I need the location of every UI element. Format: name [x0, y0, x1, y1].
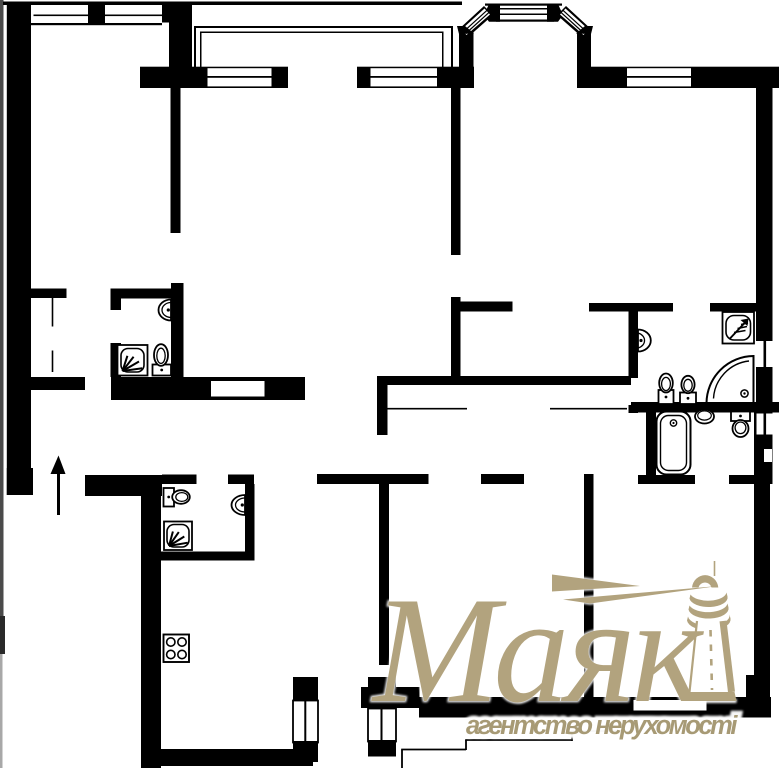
svg-text:агентство нерухомості: агентство нерухомості — [466, 712, 738, 740]
svg-text:Маяк: Маяк — [371, 566, 705, 734]
